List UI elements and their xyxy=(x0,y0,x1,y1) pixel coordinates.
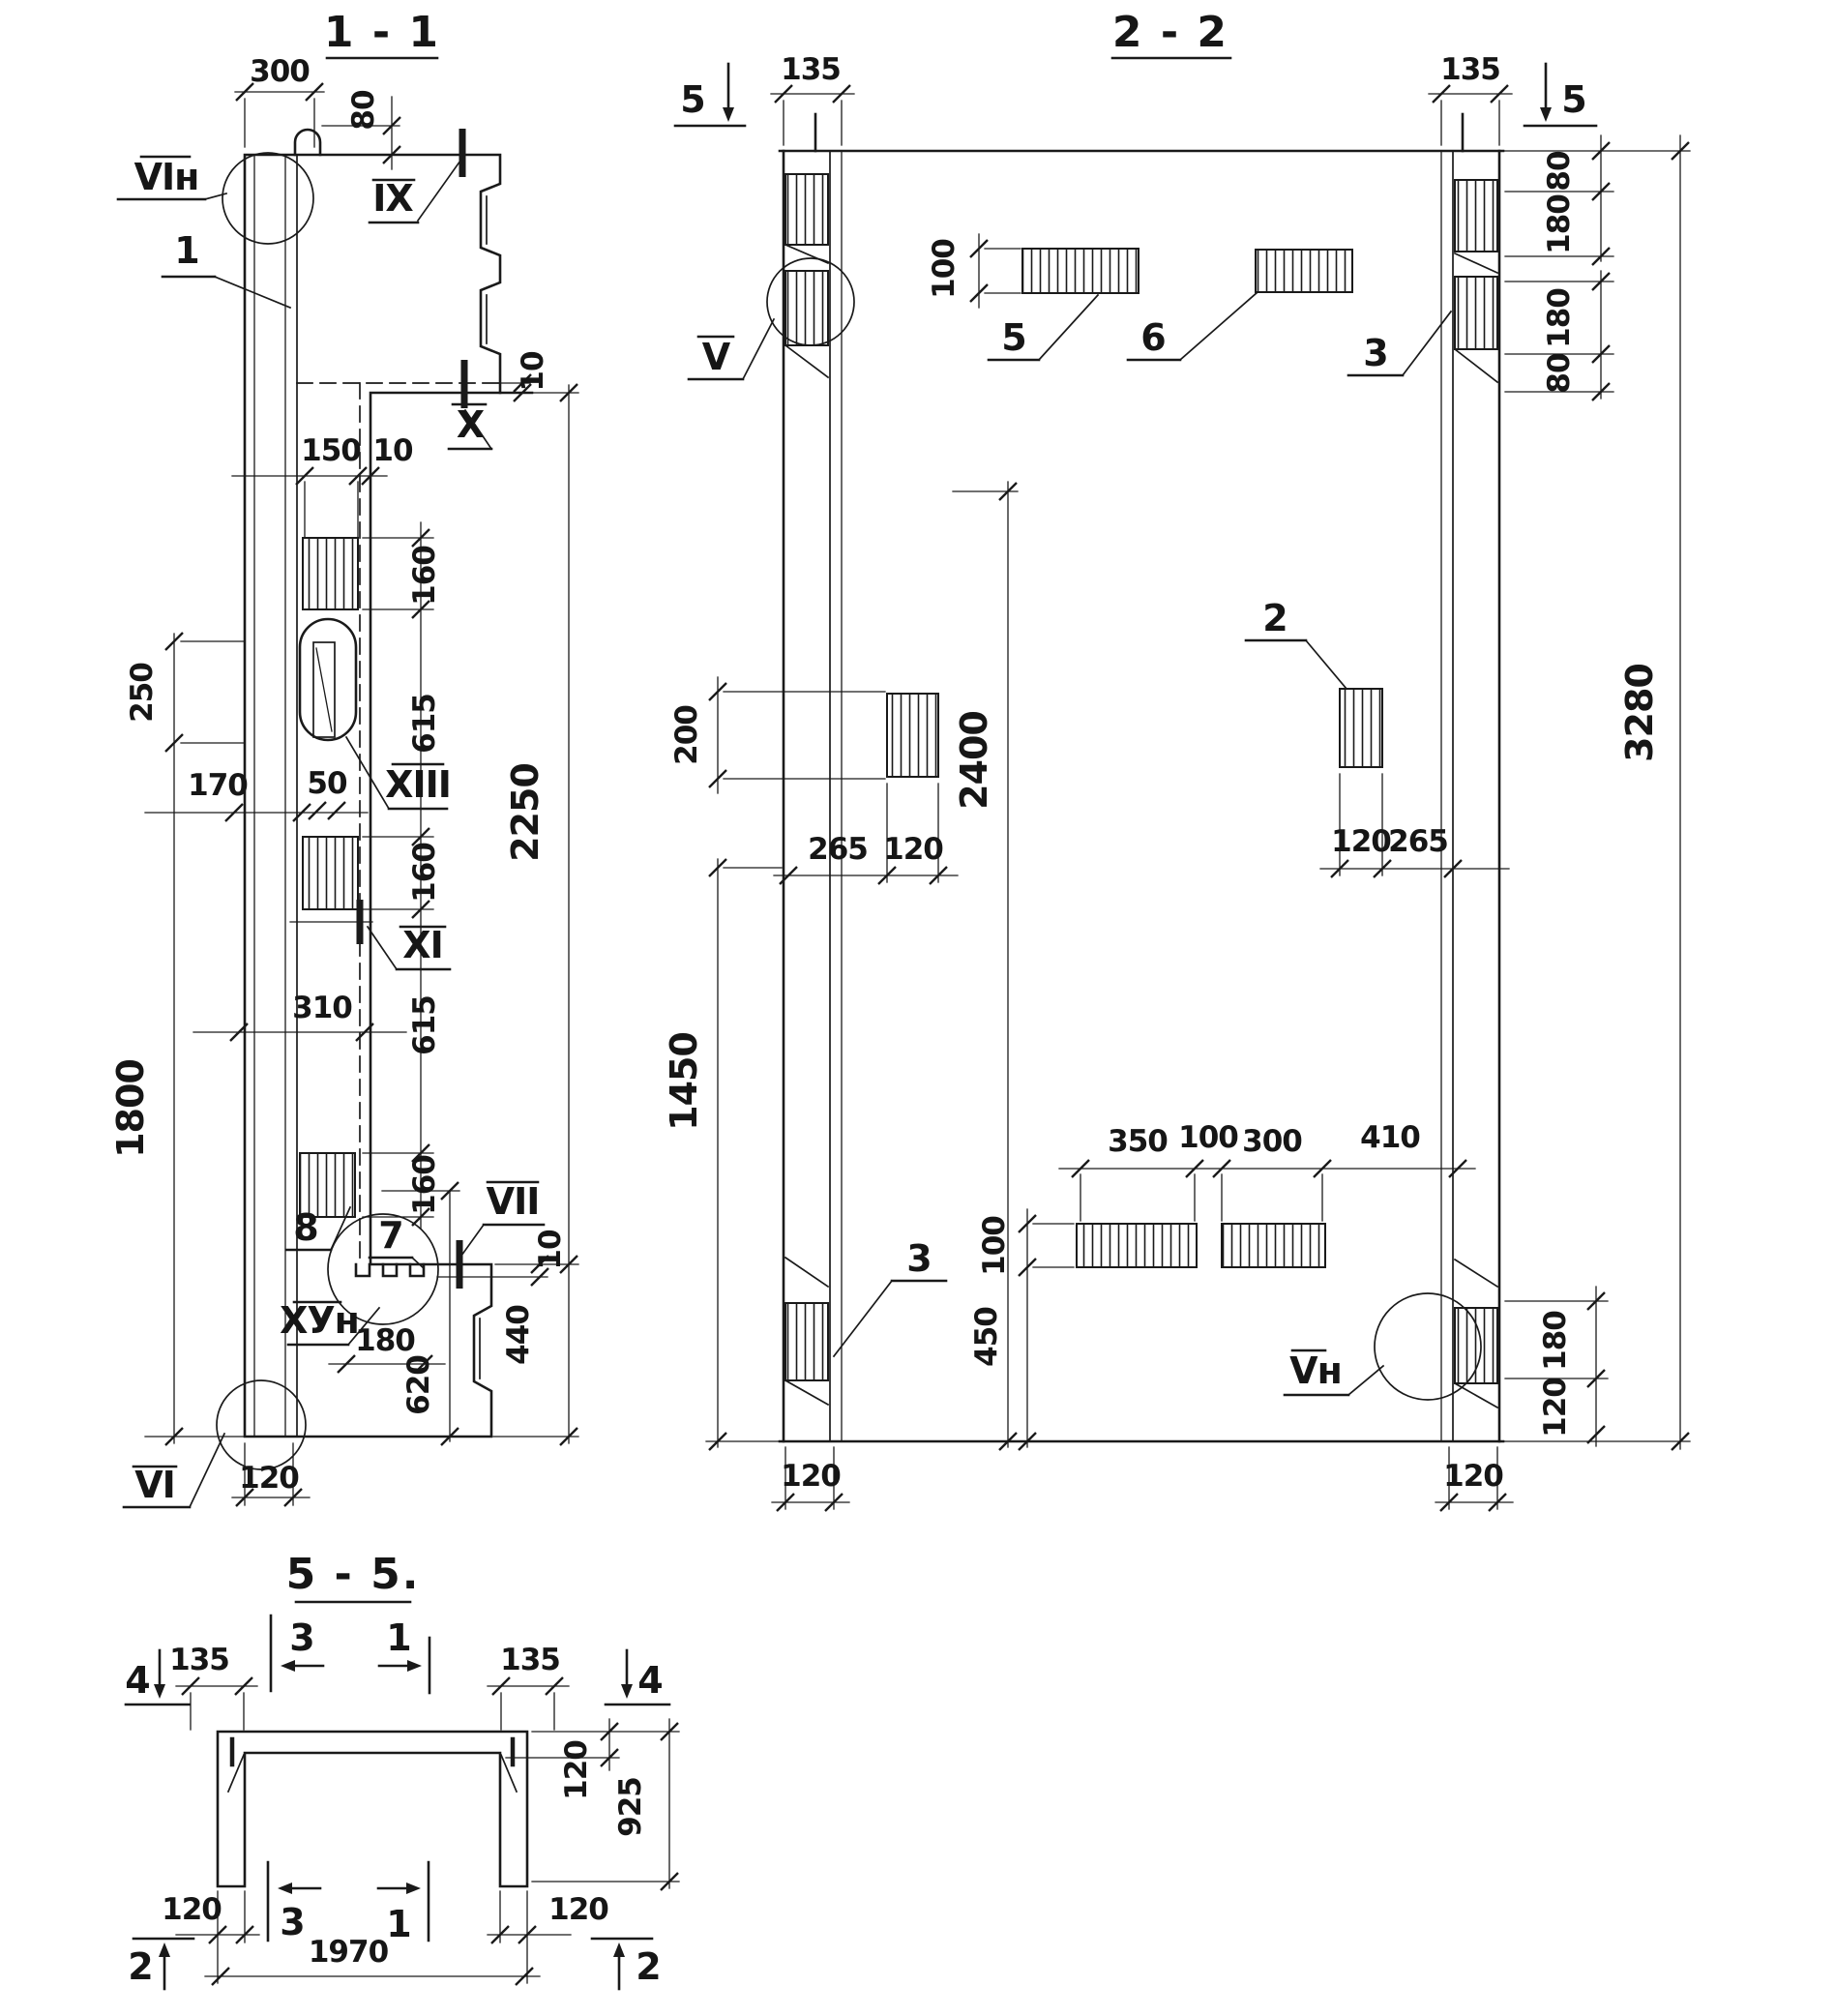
flange-plate xyxy=(1455,277,1497,349)
dim: 80 xyxy=(1542,151,1577,192)
serrated-joint xyxy=(356,1264,424,1276)
dim: 10 xyxy=(516,351,550,392)
dim: 120 xyxy=(239,1461,299,1496)
detail-label-Vn: Vн xyxy=(1289,1349,1342,1392)
cut-marker-2-left: 2 xyxy=(128,1945,152,1988)
dim: 2400 xyxy=(953,711,995,810)
face-plate xyxy=(1222,1224,1325,1267)
dim: 135 xyxy=(169,1643,229,1677)
cut-marker-1-top: 1 xyxy=(386,1616,410,1659)
dim: 160 xyxy=(407,1155,442,1215)
drawing-sheet: 1 - 1 300 80 150 10 160 615 160 615 160 … xyxy=(0,0,1835,2016)
cut-marker-5-right: 5 xyxy=(1561,78,1585,121)
dim: 450 xyxy=(969,1307,1004,1367)
face-plate xyxy=(1340,689,1382,767)
part-label-2: 2 xyxy=(1262,597,1287,639)
s22-title: 2 - 2 xyxy=(1112,8,1228,57)
dim: 120 xyxy=(781,1459,841,1494)
dim: 120 xyxy=(1331,824,1391,859)
dim: 120 xyxy=(548,1892,608,1927)
dim: 3280 xyxy=(1618,664,1661,762)
dim: 10 xyxy=(533,1230,568,1270)
section-2-2: 2 - 2 5 5 135 135 80 180 180 80 100 200 … xyxy=(663,8,1690,1511)
dim: 160 xyxy=(407,546,442,606)
dim: 615 xyxy=(407,995,442,1055)
s11-plates xyxy=(300,538,358,1217)
dim: 265 xyxy=(1388,824,1448,859)
dim: 350 xyxy=(1108,1124,1168,1159)
s11-texts: 1 - 1 300 80 150 10 160 615 160 615 160 … xyxy=(109,8,568,1507)
detail-circle-VI xyxy=(217,1380,306,1469)
section-1-1: 1 - 1 300 80 150 10 160 615 160 615 160 … xyxy=(109,8,578,1507)
face-plate xyxy=(1256,250,1352,292)
dim: 310 xyxy=(292,991,352,1025)
dim: 135 xyxy=(500,1643,560,1677)
dim: 150 xyxy=(301,433,361,468)
s11-detail-circles xyxy=(217,153,438,1469)
s11-title: 1 - 1 xyxy=(324,8,440,57)
dim: 50 xyxy=(307,766,347,801)
dim: 2250 xyxy=(504,763,547,862)
dim: 180 xyxy=(1538,1311,1573,1371)
dim: 120 xyxy=(883,832,943,867)
dim: 200 xyxy=(669,705,704,765)
dim: 100 xyxy=(1178,1120,1238,1155)
s55-title: 5 - 5. xyxy=(286,1550,421,1599)
cut-marker-3-top: 3 xyxy=(289,1616,313,1659)
dim: 1450 xyxy=(663,1032,705,1131)
cut-marker-4-right: 4 xyxy=(637,1659,662,1702)
dim: 80 xyxy=(1542,353,1577,394)
detail-label-VI: VI xyxy=(134,1464,175,1506)
dim: 440 xyxy=(501,1305,536,1365)
cut-label-XIII: XIII xyxy=(385,763,451,806)
detail-label-V: V xyxy=(702,336,731,378)
cut-marker-4-left: 4 xyxy=(125,1659,149,1702)
dim: 1970 xyxy=(309,1935,389,1970)
cut-marker-5-left: 5 xyxy=(680,78,704,121)
dim: 180 xyxy=(1542,288,1577,348)
dim: 265 xyxy=(808,832,868,867)
part-label-8: 8 xyxy=(293,1206,317,1249)
dim: 120 xyxy=(1443,1459,1503,1494)
cut-marker-3-bottom: 3 xyxy=(280,1901,304,1943)
drawing-canvas: 1 - 1 300 80 150 10 160 615 160 615 160 … xyxy=(0,0,1835,2016)
part-label-1: 1 xyxy=(174,229,198,272)
face-plate xyxy=(887,694,938,777)
cut-marker-2-right: 2 xyxy=(636,1945,660,1988)
lifting-loop xyxy=(295,130,320,155)
section-5-5: 5 - 5. 4 4 3 1 3 1 2 2 xyxy=(125,1550,679,1989)
dim: 925 xyxy=(613,1777,648,1837)
part-label-7: 7 xyxy=(378,1214,402,1257)
dim: 410 xyxy=(1360,1120,1420,1155)
dim: 615 xyxy=(407,694,442,754)
part-label-3-bottom: 3 xyxy=(906,1237,931,1280)
dim: 120 xyxy=(162,1892,222,1927)
dim: 180 xyxy=(355,1323,415,1358)
dim: 620 xyxy=(401,1355,436,1415)
flange-plate xyxy=(1455,180,1497,252)
flange-plate xyxy=(785,271,828,345)
dim: 135 xyxy=(1440,52,1500,87)
dim: 300 xyxy=(1242,1124,1302,1159)
dim: 120 xyxy=(1538,1378,1573,1438)
detail-label-XVn: ХУн xyxy=(280,1299,359,1342)
cut-label-X: X xyxy=(457,403,485,446)
s55-outline xyxy=(218,1732,527,1886)
dim: 180 xyxy=(1542,194,1577,254)
dim: 10 xyxy=(372,433,413,468)
cut-label-XI: XI xyxy=(402,924,442,966)
detail-label-VIn: VIн xyxy=(134,156,199,198)
part-label-3-top: 3 xyxy=(1363,332,1387,374)
dim: 120 xyxy=(559,1740,594,1800)
dim: 250 xyxy=(125,663,160,723)
part-label-5: 5 xyxy=(1001,316,1025,359)
flange-plate xyxy=(785,174,828,245)
face-plate xyxy=(1022,249,1139,293)
dim: 135 xyxy=(781,52,841,87)
dim: 300 xyxy=(250,54,310,89)
cut-marker-1-bottom: 1 xyxy=(386,1903,410,1945)
cut-label-IX: IX xyxy=(372,177,413,220)
lifting-slot xyxy=(300,619,356,740)
s11-hidden-lines xyxy=(297,383,530,1264)
embed-plate xyxy=(303,538,358,609)
face-plate xyxy=(1077,1224,1197,1267)
dim: 100 xyxy=(977,1216,1012,1276)
dim: 1800 xyxy=(109,1059,152,1158)
dim: 170 xyxy=(188,768,248,803)
flange-plate xyxy=(1455,1308,1497,1383)
part-label-6: 6 xyxy=(1140,316,1165,359)
detail-circle-VIn xyxy=(222,153,313,244)
dim: 100 xyxy=(927,239,962,299)
cut-label-VII: VII xyxy=(487,1180,540,1223)
flange-plate xyxy=(785,1303,828,1380)
dim: 160 xyxy=(407,843,442,903)
s55-texts: 5 - 5. 4 4 3 1 3 1 2 2 xyxy=(125,1550,669,1989)
embed-plate xyxy=(303,837,358,909)
dim: 80 xyxy=(346,90,381,131)
